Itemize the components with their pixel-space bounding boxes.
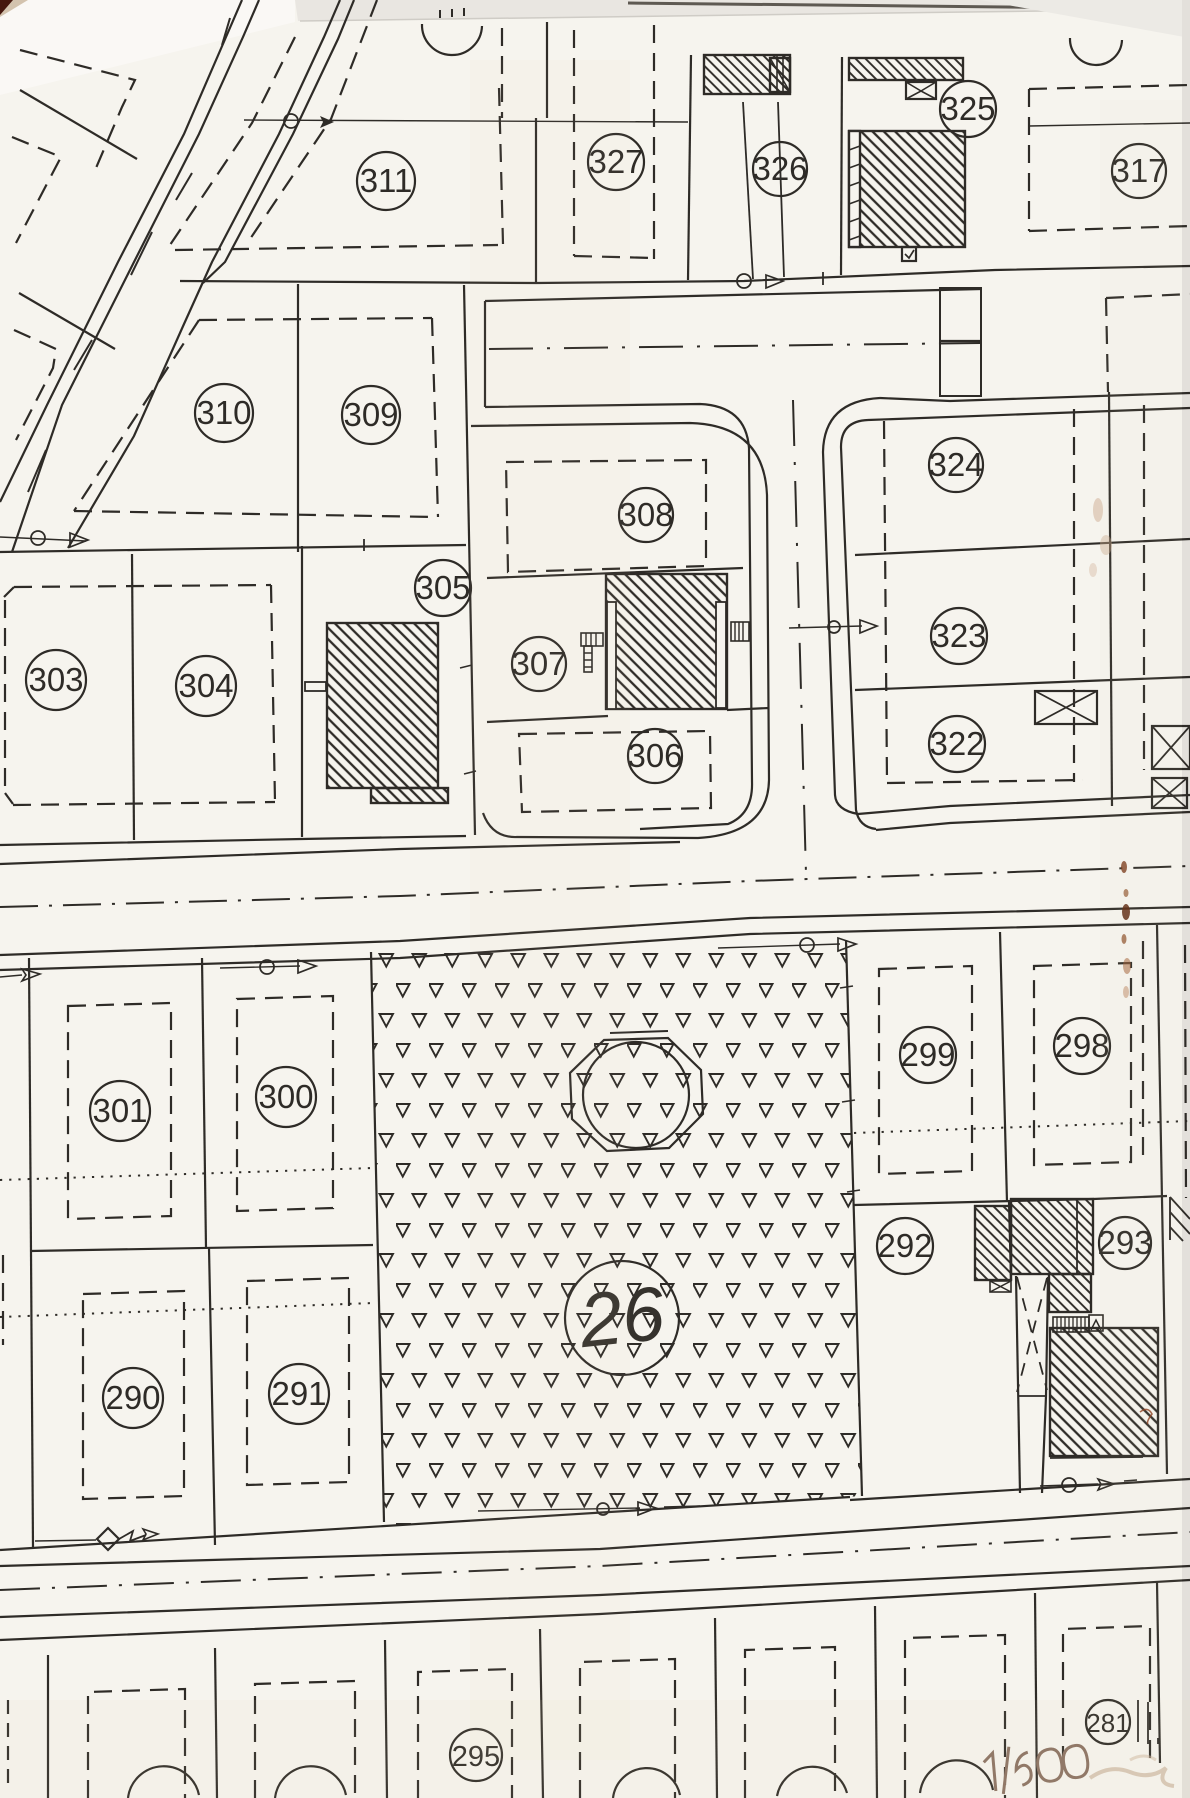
svg-text:309: 309 xyxy=(343,396,398,433)
svg-text:326: 326 xyxy=(752,150,807,187)
svg-text:303: 303 xyxy=(28,661,83,698)
svg-text:322: 322 xyxy=(929,725,984,762)
svg-text:310: 310 xyxy=(196,394,251,431)
svg-text:305: 305 xyxy=(415,569,470,606)
svg-text:324: 324 xyxy=(928,446,983,483)
svg-text:290: 290 xyxy=(105,1379,160,1416)
svg-text:325: 325 xyxy=(940,90,995,127)
svg-text:292: 292 xyxy=(877,1227,932,1264)
svg-text:304: 304 xyxy=(178,667,233,704)
svg-text:291: 291 xyxy=(271,1375,326,1412)
svg-text:306: 306 xyxy=(627,737,682,774)
svg-text:300: 300 xyxy=(258,1078,313,1115)
svg-text:299: 299 xyxy=(900,1036,955,1073)
svg-text:323: 323 xyxy=(931,617,986,654)
svg-text:301: 301 xyxy=(92,1092,147,1129)
svg-text:311: 311 xyxy=(360,162,413,199)
